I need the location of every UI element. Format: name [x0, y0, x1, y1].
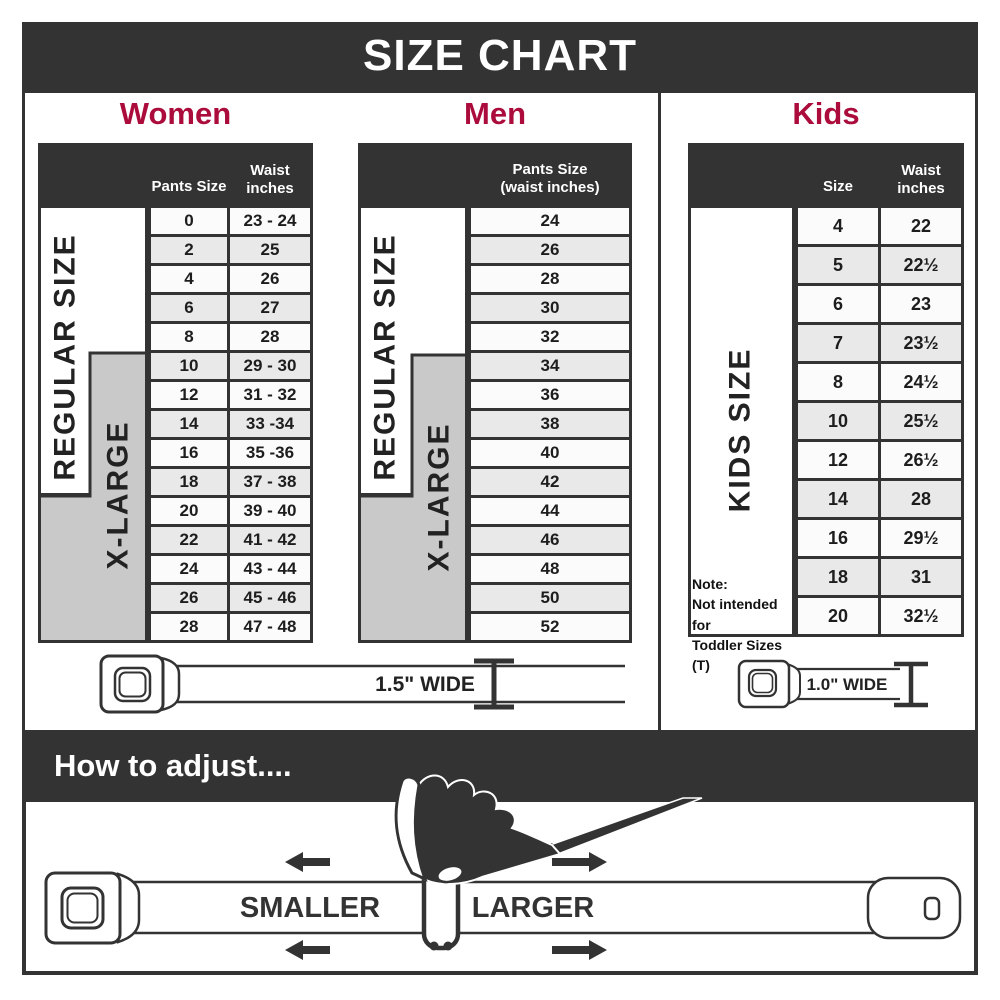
- women-size-table: 0 23 - 24 2 25 4 26 6 27 8 28: [148, 205, 313, 643]
- pants-size-cell: 32: [471, 324, 629, 350]
- how-to-adjust-bar: How to adjust....: [22, 733, 978, 798]
- waist-cell: 41 - 42: [230, 527, 310, 553]
- women-section-title: Women: [38, 96, 313, 132]
- table-row: 0 23 - 24: [151, 208, 310, 234]
- seatbelt-buckle-icon: [101, 656, 163, 712]
- waist-cell: 25½: [881, 403, 961, 439]
- size-cell: 18: [798, 559, 878, 595]
- pants-size-cell: 24: [151, 556, 227, 582]
- pants-size-cell: 14: [151, 411, 227, 437]
- waist-cell: 31 - 32: [230, 382, 310, 408]
- size-cell: 7: [798, 325, 878, 361]
- pants-size-cell: 40: [471, 440, 629, 466]
- table-row: 10 29 - 30: [151, 353, 310, 379]
- kids-size-range-labels: KIDS SIZE: [688, 205, 795, 637]
- pants-size-cell: 0: [151, 208, 227, 234]
- kids-size-table: 4 22 5 22½ 6 23 7 23½ 8 24½: [795, 205, 964, 637]
- women-size-range-labels: REGULAR SIZE X-LARGE: [38, 205, 148, 643]
- pants-size-cell: 50: [471, 585, 629, 611]
- waist-cell: 23 - 24: [230, 208, 310, 234]
- kids-belt-width-label: 1.0" WIDE: [807, 675, 888, 694]
- table-row: 2 25: [151, 237, 310, 263]
- waist-cell: 23: [881, 286, 961, 322]
- table-row: 7 23½: [798, 325, 961, 361]
- pants-size-cell: 24: [471, 208, 629, 234]
- waist-cell: 31: [881, 559, 961, 595]
- how-to-adjust-heading: How to adjust....: [22, 733, 978, 798]
- waist-cell: 28: [230, 324, 310, 350]
- pants-size-cell: 12: [151, 382, 227, 408]
- men-size-table: 24 26 28 30 32 34 36 38 40 42 44 46 48 5…: [468, 205, 632, 643]
- table-row: 4 26: [151, 266, 310, 292]
- adjust-illustration-panel: [22, 798, 978, 975]
- section-divider: [658, 90, 661, 733]
- adult-belt-illustration: 1.5" WIDE: [95, 648, 655, 720]
- pants-size-cell: 22: [151, 527, 227, 553]
- table-row: 14 28: [798, 481, 961, 517]
- kids-table-header: Size Waist inches: [688, 143, 964, 205]
- table-row: 12 26½: [798, 442, 961, 478]
- pants-size-cell: 16: [151, 440, 227, 466]
- pants-size-cell: 48: [471, 556, 629, 582]
- table-row: 28 47 - 48: [151, 614, 310, 640]
- kids-col-size: Size: [798, 178, 878, 196]
- men-table-header: Pants Size (waist inches): [358, 143, 632, 205]
- table-row: 6 27: [151, 295, 310, 321]
- men-regular-size-label: REGULAR SIZE: [369, 233, 402, 480]
- pants-size-cell: 4: [151, 266, 227, 292]
- waist-cell: 28: [881, 481, 961, 517]
- seatbelt-buckle-icon: [739, 661, 789, 707]
- waist-cell: 43 - 44: [230, 556, 310, 582]
- pants-size-cell: 38: [471, 411, 629, 437]
- pants-size-cell: 28: [471, 266, 629, 292]
- size-cell: 12: [798, 442, 878, 478]
- waist-cell: 47 - 48: [230, 614, 310, 640]
- table-row: 26 45 - 46: [151, 585, 310, 611]
- women-table-header: Pants Size Waist inches: [38, 143, 313, 205]
- pants-size-cell: 26: [151, 585, 227, 611]
- waist-cell: 45 - 46: [230, 585, 310, 611]
- waist-cell: 39 - 40: [230, 498, 310, 524]
- waist-cell: 32½: [881, 598, 961, 634]
- pants-size-cell: 44: [471, 498, 629, 524]
- men-xlarge-label: X-LARGE: [423, 423, 456, 572]
- table-row: 4 22: [798, 208, 961, 244]
- pants-size-cell: 30: [471, 295, 629, 321]
- size-cell: 20: [798, 598, 878, 634]
- kids-section-title: Kids: [688, 96, 964, 132]
- table-row: 14 33 -34: [151, 411, 310, 437]
- table-row: 5 22½: [798, 247, 961, 283]
- table-row: 18 37 - 38: [151, 469, 310, 495]
- size-cell: 14: [798, 481, 878, 517]
- waist-cell: 22: [881, 208, 961, 244]
- pants-size-cell: 52: [471, 614, 629, 640]
- adult-belt-width-label: 1.5" WIDE: [375, 673, 475, 696]
- table-row: 10 25½: [798, 403, 961, 439]
- women-xlarge-label: X-LARGE: [102, 421, 135, 570]
- waist-cell: 24½: [881, 364, 961, 400]
- table-row: 16 29½: [798, 520, 961, 556]
- size-chart-page: SIZE CHART Women Men Kids Pants Size Wai…: [0, 0, 1000, 1000]
- size-cell: 5: [798, 247, 878, 283]
- waist-cell: 26: [230, 266, 310, 292]
- waist-cell: 26½: [881, 442, 961, 478]
- pants-size-cell: 34: [471, 353, 629, 379]
- table-row: 12 31 - 32: [151, 382, 310, 408]
- pants-size-cell: 8: [151, 324, 227, 350]
- women-col-pants-size: Pants Size: [149, 178, 229, 196]
- width-measure-icon: [474, 661, 514, 707]
- pants-size-cell: 26: [471, 237, 629, 263]
- table-row: 20 32½: [798, 598, 961, 634]
- kids-size-label: KIDS SIZE: [724, 348, 757, 513]
- size-cell: 10: [798, 403, 878, 439]
- kids-col-waist: Waist inches: [881, 162, 961, 198]
- table-row: 20 39 - 40: [151, 498, 310, 524]
- men-col-pants-size: Pants Size (waist inches): [460, 161, 640, 197]
- men-size-range-labels: REGULAR SIZE X-LARGE: [358, 205, 468, 643]
- table-row: 16 35 -36: [151, 440, 310, 466]
- table-row: 24 43 - 44: [151, 556, 310, 582]
- pants-size-cell: 6: [151, 295, 227, 321]
- pants-size-cell: 28: [151, 614, 227, 640]
- title-banner: SIZE CHART: [22, 22, 978, 90]
- size-cell: 8: [798, 364, 878, 400]
- women-col-waist: Waist inches: [230, 162, 310, 198]
- pants-size-cell: 18: [151, 469, 227, 495]
- page-title: SIZE CHART: [22, 22, 978, 90]
- waist-cell: 35 -36: [230, 440, 310, 466]
- waist-cell: 27: [230, 295, 310, 321]
- table-row: 8 28: [151, 324, 310, 350]
- kids-belt-illustration: 1.0" WIDE: [735, 655, 975, 715]
- size-cell: 4: [798, 208, 878, 244]
- waist-cell: 23½: [881, 325, 961, 361]
- waist-cell: 22½: [881, 247, 961, 283]
- table-row: 8 24½: [798, 364, 961, 400]
- size-cell: 16: [798, 520, 878, 556]
- pants-size-cell: 2: [151, 237, 227, 263]
- table-row: 18 31: [798, 559, 961, 595]
- table-row: 6 23: [798, 286, 961, 322]
- pants-size-cell: 20: [151, 498, 227, 524]
- women-regular-size-label: REGULAR SIZE: [49, 233, 82, 480]
- pants-size-cell: 42: [471, 469, 629, 495]
- size-cell: 6: [798, 286, 878, 322]
- waist-cell: 25: [230, 237, 310, 263]
- table-row: 22 41 - 42: [151, 527, 310, 553]
- waist-cell: 33 -34: [230, 411, 310, 437]
- men-section-title: Men: [358, 96, 632, 132]
- waist-cell: 29 - 30: [230, 353, 310, 379]
- waist-cell: 37 - 38: [230, 469, 310, 495]
- pants-size-cell: 36: [471, 382, 629, 408]
- pants-size-cell: 10: [151, 353, 227, 379]
- pants-size-cell: 46: [471, 527, 629, 553]
- waist-cell: 29½: [881, 520, 961, 556]
